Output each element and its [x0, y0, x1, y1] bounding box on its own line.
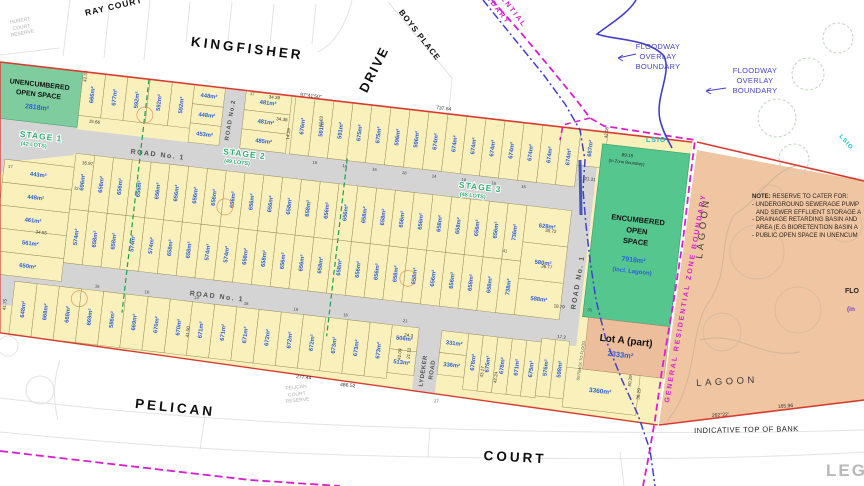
- background-parcel-line: [428, 428, 430, 457]
- dimension-label: 17.2: [557, 334, 567, 340]
- tree-outline: [823, 23, 853, 53]
- floodway-line: FLOODWAY: [712, 66, 798, 76]
- lsio-label: LSIO: [646, 137, 666, 144]
- floodway-line: FLOODWAY: [620, 42, 696, 52]
- lot-a-parcel: [583, 317, 670, 378]
- estate-band: UNENCUMBEREDOPEN SPACE2818m²666m²677m²59…: [0, 56, 693, 429]
- background-parcel-line: [63, 0, 70, 56]
- note-title: NOTE: RESERVE TO CATER FOR:: [752, 194, 861, 202]
- note-block: NOTE: RESERVE TO CATER FOR: - UNDERGROUN…: [752, 194, 861, 241]
- floodway-overlay-boundary-label-1: FLOODWAY OVERLAY BOUNDARY: [620, 42, 696, 72]
- dimension-label: 486.52: [340, 382, 356, 389]
- dimension-label: 737.64: [436, 105, 452, 113]
- note-intro: RESERVE TO CATER FOR:: [772, 194, 848, 200]
- dimension-label: 165.96: [778, 403, 794, 410]
- background-parcel-line: [620, 452, 624, 486]
- dimension-label: 24.3: [404, 332, 414, 338]
- note-item: AND SEWER EFFLUENT STORAGE A: [752, 210, 861, 218]
- floodway-overlay-curve: [597, 0, 672, 148]
- floodway-line: BOUNDARY: [620, 62, 696, 72]
- note-item: AREA (E.G BIORETENTION BASIN A: [752, 225, 861, 233]
- background-parcel-line: [186, 2, 190, 42]
- background-parcel-line: [228, 2, 232, 40]
- note-item: - PUBLIC OPEN SPACE IN UNENCUM: [752, 233, 861, 241]
- cut-label-flo: FLO: [845, 288, 859, 297]
- zone-boundary-line-southwest: [0, 451, 340, 486]
- floodway-thick-segment: [580, 160, 581, 215]
- background-parcel-line: [54, 360, 60, 420]
- indicative-top-of-bank-label: INDICATIVE TOP OF BANK: [694, 424, 799, 435]
- legend-label-cut: LEGEND: [826, 460, 864, 481]
- note-item: - UNDERGROUND SEWERAGE PUMP: [752, 202, 861, 210]
- floodway-line: OVERLAY: [712, 76, 798, 86]
- note-heading: NOTE:: [752, 194, 771, 200]
- frontage-number: 17: [434, 398, 440, 404]
- background-parcel-line: [144, 0, 150, 60]
- floodway-overlay-boundary-label-2: FLOODWAY OVERLAY BOUNDARY: [712, 66, 798, 96]
- background-parcel-line: [270, 4, 274, 44]
- street-label-court: COURT: [483, 448, 547, 468]
- dimension-label: 277.44: [296, 374, 312, 381]
- pelican-court-reserve-label: PELICAN COURT RESERVE: [284, 384, 310, 406]
- hubert-court-reserve-label: HUBERT COURT RESERVE: [8, 16, 35, 39]
- subdivision-plan-map: UNENCUMBEREDOPEN SPACE2818m²666m²677m²59…: [0, 0, 864, 486]
- background-parcel-line: [312, 4, 316, 44]
- note-item: - DRAINAGE RETARDING BASIN AND: [752, 217, 861, 225]
- background-circle: [26, 376, 54, 404]
- background-parcel-line: [318, 0, 352, 52]
- background-parcel-line: [200, 416, 205, 450]
- cut-label-incl: (in: [847, 306, 855, 314]
- background-circle: [0, 336, 18, 356]
- background-parcel-line: [0, 432, 864, 459]
- floodway-line: BOUNDARY: [712, 86, 798, 96]
- background-parcel-line: [0, 48, 60, 55]
- tree-outline: [758, 99, 796, 137]
- floodway-line: OVERLAY: [620, 52, 696, 62]
- dimension-label: 262°22': [712, 412, 729, 419]
